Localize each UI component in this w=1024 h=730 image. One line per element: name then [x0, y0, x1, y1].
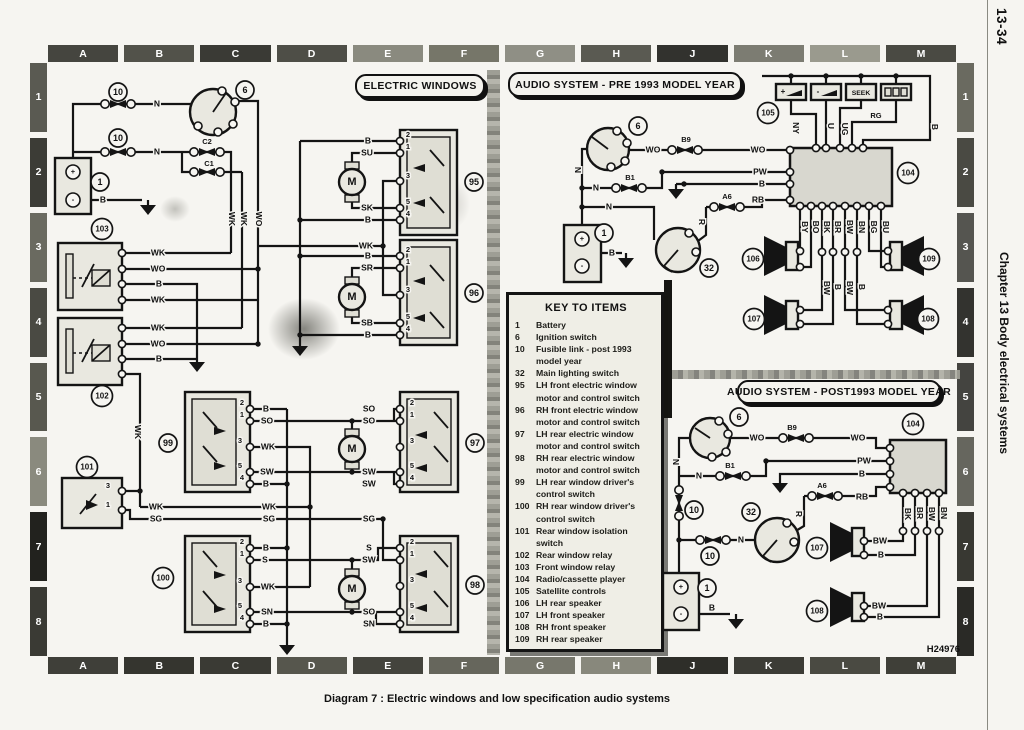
terminal: [396, 620, 403, 627]
wire-label: BW: [845, 220, 855, 235]
terminal: [246, 608, 253, 615]
terminal: [796, 320, 803, 327]
wire-label: 3: [238, 576, 242, 585]
component-ref-number: 107: [747, 315, 761, 324]
terminal: [812, 144, 819, 151]
wire-label: SG: [363, 513, 376, 523]
terminal: [860, 537, 867, 544]
wire-label: B: [365, 329, 371, 339]
component-ref-number: 107: [810, 544, 824, 553]
terminal: [118, 340, 125, 347]
terminal: [899, 489, 906, 496]
terminal: [396, 405, 403, 412]
wire-label: WK: [149, 501, 164, 511]
wire-label: B: [759, 178, 765, 188]
terminal: [118, 265, 125, 272]
junction-dot: [349, 418, 354, 423]
junction-dot: [659, 169, 664, 174]
wire-label: WK: [261, 441, 276, 451]
wire-label: B9: [787, 423, 797, 432]
component-ref-number: 10: [113, 87, 123, 97]
terminal: [246, 480, 253, 487]
terminal: [884, 306, 891, 313]
wire-label: N: [696, 470, 702, 480]
terminal: [118, 280, 125, 287]
wire-label: N: [154, 98, 160, 108]
terminal: [246, 468, 253, 475]
diagram-caption: Diagram 7 : Electric windows and low spe…: [97, 693, 897, 705]
front-window-relay-103: [58, 243, 122, 310]
wire-label: 5: [406, 312, 410, 321]
terminal: [859, 144, 866, 151]
terminal: [836, 144, 843, 151]
wire-label: BY: [800, 221, 810, 233]
wire-label: N: [573, 167, 583, 173]
terminal: [396, 417, 403, 424]
junction-dot: [681, 181, 686, 186]
junction-dot: [255, 266, 260, 271]
wire-label: R: [697, 219, 707, 225]
wire-label: WK: [151, 294, 166, 304]
wire-label: B: [878, 549, 884, 559]
wire-label: BR: [915, 507, 925, 519]
wires-front-windows: [258, 141, 400, 341]
wire-label: 2: [240, 398, 244, 407]
junction-dot: [893, 73, 898, 78]
wire-label: NY: [791, 122, 801, 134]
junction-dot: [823, 73, 828, 78]
terminal: [118, 355, 125, 362]
junction-dot: [380, 516, 385, 521]
terminal: [818, 202, 825, 209]
junction-dot: [858, 73, 863, 78]
window-unit-98: [400, 536, 458, 632]
terminal: [884, 320, 891, 327]
fuse-c1: [190, 168, 224, 176]
wire-label: SO: [363, 606, 376, 616]
wire-label: BN: [939, 507, 949, 519]
wire-label: S: [366, 542, 372, 552]
terminal: [886, 457, 893, 464]
wiring-schematic: + - SEEK: [0, 0, 1024, 730]
scanned-manual-page: ABCDEFGHJKLM ABCDEFGHJKLM 12345678 12345…: [0, 0, 1024, 730]
terminal: [911, 527, 918, 534]
wire-label: M: [347, 176, 356, 188]
lighting-switch-post: [755, 518, 799, 562]
satellite-controls: + - SEEK: [776, 84, 911, 100]
junction-dot: [284, 545, 289, 550]
component-ref-number: 100: [156, 574, 170, 583]
wire-label: BR: [833, 221, 843, 233]
wire-label: N: [671, 459, 681, 465]
wire-label: +: [71, 167, 76, 176]
window-unit-97: [400, 392, 458, 492]
wire-label: WK: [151, 322, 166, 332]
wire-label: 3: [106, 481, 110, 490]
wire-label: SR: [361, 262, 373, 272]
terminal: [396, 443, 403, 450]
wire-label: B: [709, 602, 715, 612]
terminal: [118, 506, 125, 513]
wire-label: 3: [406, 171, 410, 180]
component-ref-number: 97: [470, 438, 480, 448]
ground-symbol: [772, 478, 788, 493]
terminal: [860, 613, 867, 620]
component-ref-number: 106: [746, 255, 760, 264]
wire-label: UG: [840, 123, 850, 136]
junction-dot: [349, 469, 354, 474]
wire-label: B: [156, 353, 162, 363]
wire-label: B: [263, 618, 269, 628]
wire-label: WO: [851, 432, 866, 442]
component-ref-number: 99: [163, 438, 173, 448]
wire-label: 2: [406, 130, 410, 139]
wire-label: SO: [363, 415, 376, 425]
terminal: [118, 370, 125, 377]
terminal: [786, 168, 793, 175]
speaker-107-post: [830, 522, 864, 562]
wire-label: SN: [261, 606, 273, 616]
terminal: [396, 291, 403, 298]
wire-label: A6: [817, 481, 827, 490]
fuse-a6-post: [808, 492, 842, 500]
terminal: [246, 556, 253, 563]
wire-label: B: [263, 403, 269, 413]
speaker-106: [764, 236, 798, 276]
volume-down-label: -: [817, 87, 820, 96]
wire-label: M: [347, 443, 356, 455]
wire-label: 1: [410, 549, 414, 558]
wire-label: BK: [822, 221, 832, 234]
component-ref-number: 6: [736, 412, 741, 422]
component-ref-number: 101: [80, 463, 94, 472]
component-ref-number: 108: [810, 607, 824, 616]
wire-label: 5: [238, 601, 242, 610]
margin-rule: [987, 0, 988, 730]
junction-dot: [788, 73, 793, 78]
wire-label: SG: [263, 513, 276, 523]
ignition-switch-pre: [587, 127, 631, 171]
terminal: [865, 202, 872, 209]
terminal: [822, 144, 829, 151]
wire-label: N: [606, 201, 612, 211]
terminal: [884, 247, 891, 254]
component-ref-number: 1: [97, 177, 102, 187]
wire-label: C2: [202, 137, 212, 146]
junction-dot: [297, 332, 302, 337]
terminal: [246, 583, 253, 590]
terminal: [246, 620, 253, 627]
volume-up-label: +: [781, 87, 786, 96]
terminal: [396, 149, 403, 156]
speaker-108-post: [830, 587, 864, 627]
terminal: [796, 247, 803, 254]
wire-label: SU: [361, 147, 373, 157]
speaker-107: [764, 295, 798, 335]
junction-dot: [349, 557, 354, 562]
wire-label: B1: [625, 173, 635, 182]
wire-label: S: [262, 554, 268, 564]
wire-label: 5: [238, 461, 242, 470]
terminal: [807, 202, 814, 209]
wire-label: SO: [261, 415, 274, 425]
page-number: 13-34: [994, 8, 1009, 45]
wire-label: 3: [406, 285, 410, 294]
wire-label: N: [738, 534, 744, 544]
terminal: [396, 582, 403, 589]
junction-dot: [307, 504, 312, 509]
terminal: [396, 252, 403, 259]
wire-label: B: [365, 250, 371, 260]
fuse-b1-post: [716, 472, 750, 480]
wire-label: M: [347, 583, 356, 595]
terminal: [246, 544, 253, 551]
wire-label: 1: [410, 410, 414, 419]
wire-label: BK: [903, 508, 913, 521]
wire-label: WK: [239, 212, 249, 227]
ground-symbol: [140, 200, 156, 215]
ground-symbol: [618, 253, 634, 268]
wire-label: SN: [363, 618, 375, 628]
terminal: [935, 489, 942, 496]
terminal: [796, 306, 803, 313]
wire-label: BW: [845, 281, 855, 296]
wire-label: WO: [254, 212, 264, 227]
wire-label: +: [580, 234, 585, 243]
component-ref-number: 98: [470, 580, 480, 590]
fuse-c2: [190, 148, 224, 156]
wire-label: C1: [204, 159, 214, 168]
wire-label: PW: [857, 455, 872, 465]
junction-dot: [763, 458, 768, 463]
component-ref-number: 6: [242, 85, 247, 95]
terminal: [396, 556, 403, 563]
terminal: [246, 443, 253, 450]
wire-label: WK: [227, 212, 237, 227]
wire-label: B: [365, 135, 371, 145]
terminal: [935, 527, 942, 534]
terminal: [396, 204, 403, 211]
terminal: [848, 144, 855, 151]
wire-label: WO: [750, 432, 765, 442]
ignition-switch-ew: [190, 87, 239, 136]
wire-label: M: [347, 291, 356, 303]
terminal: [246, 405, 253, 412]
wire-label: B: [100, 194, 106, 204]
wire-label: B: [859, 468, 865, 478]
terminal: [786, 146, 793, 153]
terminal: [841, 202, 848, 209]
wire-label: WK: [151, 247, 166, 257]
component-ref-number: 102: [95, 392, 109, 401]
junction-dot: [380, 243, 385, 248]
component-ref-number: 96: [469, 288, 479, 298]
wire-label: RG: [870, 111, 881, 120]
wire-label: BO: [811, 221, 821, 234]
component-ref-number: 104: [901, 169, 915, 178]
terminal: [886, 444, 893, 451]
wire-label: WO: [151, 338, 166, 348]
terminal: [860, 602, 867, 609]
wire-label: BW: [822, 281, 832, 296]
terminal: [886, 483, 893, 490]
component-ref-number: 108: [921, 315, 935, 324]
wire-label: 5: [410, 461, 414, 470]
wire-label: 5: [410, 601, 414, 610]
terminal: [786, 196, 793, 203]
component-ref-number: 109: [922, 255, 936, 264]
terminal: [796, 263, 803, 270]
wire-label: R: [794, 511, 804, 517]
component-ref-number: 10: [705, 551, 715, 561]
isolation-switch-101: [62, 478, 122, 528]
wire-label: B1: [725, 461, 735, 470]
component-ref-number: 32: [704, 263, 714, 273]
fusible-link-post: [696, 536, 730, 544]
wire-label: PW: [753, 166, 768, 176]
junction-dot: [349, 609, 354, 614]
terminal: [923, 527, 930, 534]
terminal: [818, 248, 825, 255]
terminal: [396, 137, 403, 144]
wire-label: RB: [752, 194, 764, 204]
component-ref-number: 6: [635, 121, 640, 131]
radio-cassette-post: [890, 440, 946, 493]
wire-label: SW: [260, 466, 275, 476]
terminal: [786, 180, 793, 187]
junction-dot: [579, 185, 584, 190]
wire-label: 5: [406, 197, 410, 206]
component-ref-number: 10: [113, 133, 123, 143]
wire-label: 2: [410, 537, 414, 546]
wire-label: N: [154, 146, 160, 156]
figure-code: H24976: [898, 644, 960, 655]
wire-label: 1: [406, 257, 410, 266]
wire-label: B: [857, 284, 867, 290]
ground-symbol: [668, 184, 684, 199]
wire-label: N: [593, 182, 599, 192]
junction-dot: [579, 204, 584, 209]
terminal: [118, 487, 125, 494]
rear-window-relay-102: [58, 318, 122, 385]
wire-label: 1: [106, 500, 110, 509]
fuse-b1: [612, 184, 646, 192]
wire-label: WK: [133, 425, 143, 440]
terminal: [860, 551, 867, 558]
component-ref-number: 105: [761, 109, 775, 118]
terminal: [396, 608, 403, 615]
terminal: [118, 296, 125, 303]
seek-button-label: SEEK: [852, 90, 871, 97]
wire-label: B: [930, 124, 940, 130]
wire-label: WO: [751, 144, 766, 154]
wire-label: B: [609, 247, 615, 257]
junction-dot: [297, 253, 302, 258]
terminal: [899, 527, 906, 534]
wire-label: WK: [261, 581, 276, 591]
chapter-title: Chapter 13 Body electrical systems: [997, 252, 1011, 454]
wire-label: BW: [927, 507, 937, 522]
component-ref-number: 10: [689, 505, 699, 515]
wire-label: A6: [722, 192, 732, 201]
wire-label: B: [833, 284, 843, 290]
wire-label: B: [877, 611, 883, 621]
wire-label: SW: [362, 478, 377, 488]
component-ref-number: 1: [704, 583, 709, 593]
wire-label: 1: [406, 142, 410, 151]
wire-label: BW: [872, 600, 887, 610]
terminal: [886, 470, 893, 477]
wire-label: SO: [363, 403, 376, 413]
terminal: [923, 489, 930, 496]
wire-label: 2: [240, 537, 244, 546]
wire-label: 3: [238, 436, 242, 445]
terminal: [796, 202, 803, 209]
wire-label: SB: [361, 317, 373, 327]
terminal: [246, 417, 253, 424]
wire-label: BW: [873, 535, 888, 545]
ground-symbol: [728, 614, 744, 629]
fusible-link: [101, 148, 135, 156]
wire-label: U: [826, 123, 836, 129]
fusible-link-post: [675, 486, 683, 520]
wire-label: BG: [869, 221, 879, 234]
terminal: [911, 489, 918, 496]
terminal: [853, 248, 860, 255]
terminal: [884, 263, 891, 270]
lighting-switch-pre: [656, 228, 700, 272]
terminal: [853, 202, 860, 209]
terminal: [396, 177, 403, 184]
wire-label: B: [156, 278, 162, 288]
component-ref-number: 32: [746, 507, 756, 517]
wire-label: WO: [151, 263, 166, 273]
wire-label: WK: [359, 240, 374, 250]
wire-label: 1: [240, 549, 244, 558]
component-ref-number: 95: [469, 177, 479, 187]
wire-label: BN: [857, 221, 867, 233]
junction-dot: [284, 621, 289, 626]
junction-dot: [284, 481, 289, 486]
terminal: [396, 468, 403, 475]
component-ref-number: 1: [601, 228, 606, 238]
terminal: [396, 319, 403, 326]
terminal: [829, 202, 836, 209]
ignition-switch-post: [690, 417, 732, 461]
terminal: [118, 249, 125, 256]
fuse-b9: [668, 146, 702, 154]
junction-dot: [297, 217, 302, 222]
wire-label: B9: [681, 135, 691, 144]
wire-label: BU: [881, 221, 891, 233]
terminal: [118, 324, 125, 331]
terminal: [396, 264, 403, 271]
wire-label: RB: [856, 491, 868, 501]
terminal: [396, 544, 403, 551]
component-ref-number: 104: [906, 420, 920, 429]
terminal: [829, 248, 836, 255]
wire-label: B: [365, 214, 371, 224]
junction-dot: [676, 537, 681, 542]
terminal: [396, 216, 403, 223]
wire-label: SW: [362, 466, 377, 476]
ground-symbol: [279, 640, 295, 655]
terminal: [396, 331, 403, 338]
fuse-b9-post: [779, 434, 813, 442]
wire-label: SG: [150, 513, 163, 523]
wire-label: B: [263, 542, 269, 552]
wire-label: 3: [410, 436, 414, 445]
